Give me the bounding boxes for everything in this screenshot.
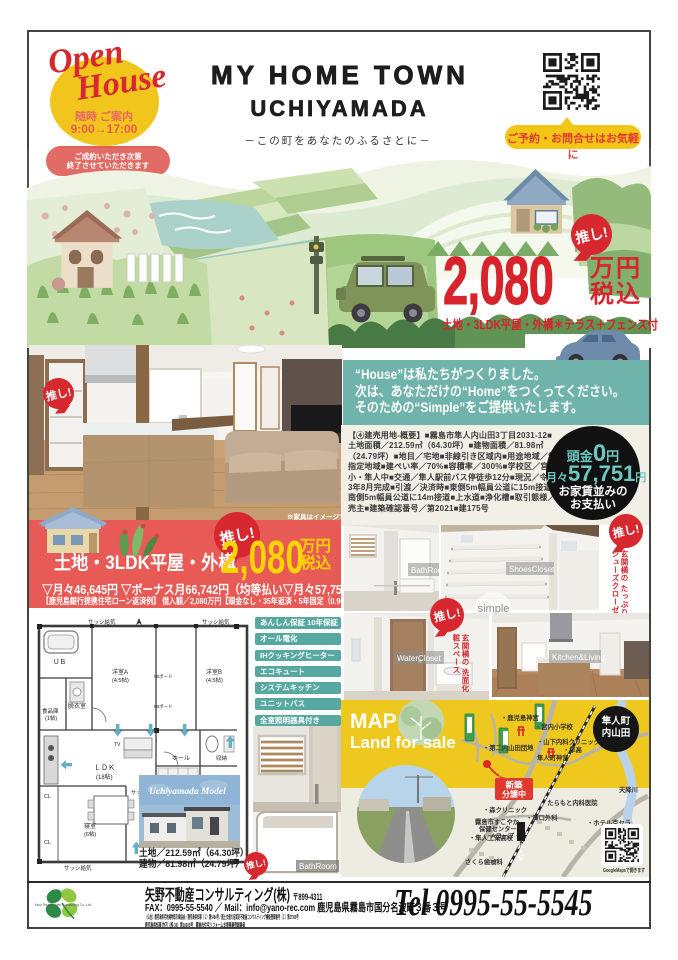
svg-text:脱衣室: 脱衣室 [68,702,86,710]
svg-text:・隼人工業高校: ・隼人工業高校 [469,833,514,842]
svg-text:WaterCloset: WaterCloset [397,654,441,663]
svg-text:(6帖): (6帖) [84,830,96,838]
svg-text:ＵＢ: ＵＢ [53,659,66,666]
svg-text:サッシ給気: サッシ給気 [202,618,230,626]
svg-text:食品庫: 食品庫 [42,707,59,715]
svg-text:TV: TV [114,742,121,748]
svg-text:98ポード: 98ポード [154,703,173,709]
svg-text:サッシ給気: サッシ給気 [88,618,116,626]
svg-text:保健センター・: 保健センター・ [478,824,523,833]
svg-text:洋室B: 洋室B [206,668,222,676]
svg-text:(1帖): (1帖) [45,714,57,722]
svg-text:・第二内山田団地: ・第二内山田団地 [483,743,534,752]
svg-text:・たらもと内科医院: ・たらもと内科医院 [541,798,598,807]
svg-text:(4.5帖): (4.5帖) [112,676,129,684]
svg-text:(18帖): (18帖) [96,773,113,781]
svg-text:98ポード: 98ポード [154,673,173,679]
svg-text:ShoesCloset: ShoesCloset [509,565,555,574]
svg-text:隼人駅: 隼人駅 [517,842,524,862]
svg-text:天降川: 天降川 [619,785,638,794]
svg-text:洋室A: 洋室A [112,668,128,676]
svg-text:(4.5帖): (4.5帖) [206,676,223,684]
svg-text:ＬＤＫ: ＬＤＫ [94,764,115,772]
svg-text:霧島市すこやか: 霧島市すこやか [474,817,520,826]
svg-text:Kitchen&Living: Kitchen&Living [552,653,605,662]
svg-text:隼人町神宮: 隼人町神宮 [537,753,568,762]
svg-text:CL: CL [44,840,51,846]
svg-text:・森クリニック: ・森クリニック [483,805,527,814]
svg-text:寝室: 寝室 [84,822,96,830]
svg-text:BathRoom: BathRoom [299,862,337,871]
svg-text:CL: CL [44,794,51,800]
svg-text:・鹿児島神宮: ・鹿児島神宮 [501,713,539,722]
svg-text:GoogleMapsで開きます: GoogleMapsで開きます [603,867,645,874]
svg-text:Uchiyamada Model: Uchiyamada Model [149,787,226,797]
svg-text:・溝口外科: ・溝口外科 [526,813,558,822]
svg-text:さくら歯療科: さくら歯療科 [465,857,503,866]
svg-text:新築: 新築 [505,780,523,790]
svg-text:BathRoom: BathRoom [411,566,439,575]
svg-text:・山下内科クリニック: ・山下内科クリニック [537,737,600,746]
svg-text:・隼高: ・隼高 [563,745,583,754]
svg-text:・宮内小学校: ・宮内小学校 [535,722,573,731]
svg-text:収納: 収納 [216,754,228,762]
svg-text:ホール: ホール [172,755,190,762]
svg-text:サッシ給気: サッシ給気 [64,864,92,872]
svg-text:分譲中: 分譲中 [502,789,526,799]
